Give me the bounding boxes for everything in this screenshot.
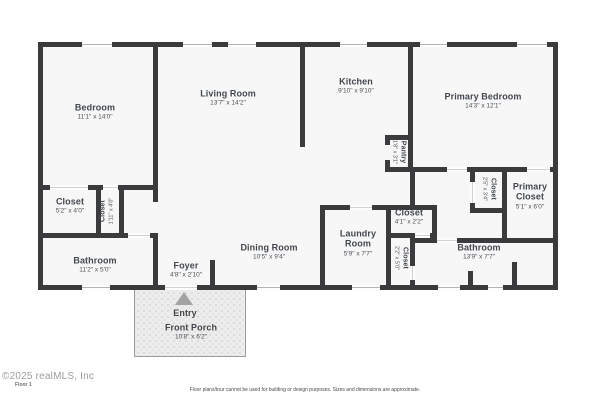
room-label-kitchen: Kitchen 9'10" x 9'10" [338, 77, 374, 96]
window [438, 285, 460, 290]
room-label-pantry: Pantry 1'8" x 3'1" [391, 140, 406, 164]
door-opening [103, 185, 118, 190]
entry-arrow-icon [175, 292, 193, 305]
floorplan-canvas: Bedroom 11'1" x 14'0" Living Room 13'7" … [0, 0, 600, 400]
wall [410, 238, 415, 266]
wall [430, 233, 437, 238]
door-opening [410, 266, 415, 280]
door-opening [470, 182, 475, 203]
wall [212, 42, 228, 47]
window [183, 42, 212, 47]
room-label-bathroom-right: Bathroom 13'9" x 7'7" [457, 243, 500, 262]
room-name: Bathroom [73, 256, 116, 266]
wall [385, 140, 390, 145]
room-name: Closet [395, 208, 423, 218]
room-name: Closet [99, 198, 107, 225]
door-opening [50, 185, 88, 190]
window [340, 42, 367, 47]
wall [38, 42, 43, 290]
room-name: Bathroom [457, 243, 500, 253]
wall [153, 233, 158, 285]
room-dims: 10'5" x 9'4" [240, 254, 297, 261]
wall [385, 167, 413, 172]
room-dims: 5'2" x 4'0" [56, 208, 84, 215]
room-label-closet-1: Closet 5'2" x 4'0" [56, 197, 84, 216]
wall [43, 185, 50, 190]
wall [503, 285, 558, 290]
wall [512, 262, 517, 285]
wall [467, 167, 527, 172]
room-name: Front Porch [165, 323, 217, 333]
room-name: Bedroom [75, 103, 115, 113]
window [420, 42, 447, 47]
disclaimer-text: Floor plans/tour cannot be used for buil… [190, 387, 420, 393]
room-label-primary-closet: Primary Closet 5'1" x 6'0" [507, 181, 553, 210]
wall [38, 285, 82, 290]
window [82, 285, 110, 290]
room-name: Primary Bedroom [444, 92, 521, 102]
room-label-dining-room: Dining Room 10'5" x 9'4" [240, 243, 297, 262]
wall [460, 285, 488, 290]
wall [386, 205, 391, 285]
room-name: Primary Closet [507, 181, 553, 202]
room-dims: 2'5" x 3'4" [481, 177, 487, 201]
wall [468, 271, 473, 285]
door-opening [128, 233, 150, 238]
wall [413, 167, 447, 172]
wall [153, 47, 158, 202]
room-label-closet-5: Closet 2'5" x 3'4" [481, 177, 496, 201]
room-label-front-porch: Front Porch 10'8" x 6'2" [165, 323, 217, 342]
room-label-living-room: Living Room 13'7" x 14'2" [200, 89, 256, 108]
room-dims: 14'3" x 12'1" [444, 103, 521, 110]
room-label-bedroom: Bedroom 11'1" x 14'0" [75, 103, 115, 122]
wall [380, 285, 438, 290]
room-dims: 1'11" x 4'0" [108, 198, 114, 225]
door-opening [350, 205, 372, 210]
room-dims: 10'8" x 6'2" [165, 334, 217, 341]
wall [320, 205, 325, 285]
door-opening [437, 238, 457, 243]
wall [385, 160, 390, 167]
wall [300, 47, 305, 147]
door-opening [447, 167, 467, 172]
wall [470, 172, 475, 182]
room-dims: 4'1" x 2'2" [395, 219, 423, 226]
room-name: Pantry [399, 140, 407, 164]
wall [408, 47, 413, 172]
floor-number-label: Floor 1 [15, 382, 32, 388]
window [517, 42, 547, 47]
room-name: Foyer [170, 261, 202, 271]
room-dims: 5'9" x 7'7" [332, 250, 384, 257]
room-dims: 9'10" x 9'10" [338, 88, 374, 95]
room-label-closet-4: Closet 2'2" x 5'0" [393, 246, 408, 270]
room-label-closet-2: Closet 1'11" x 4'0" [99, 198, 114, 225]
room-dims: 2'2" x 5'0" [393, 246, 399, 270]
window [257, 285, 280, 290]
wall [150, 233, 153, 238]
wall [410, 172, 415, 208]
wall [38, 42, 82, 47]
wall [43, 233, 128, 238]
room-dims: 4'8" x 2'10" [170, 272, 202, 279]
room-name: Living Room [200, 89, 256, 99]
room-dims: 13'9" x 7'7" [457, 254, 500, 261]
room-name: Closet [56, 197, 84, 207]
wall [280, 285, 352, 290]
wall [413, 238, 437, 243]
watermark-text: ©2025 realMLS, Inc [2, 371, 94, 382]
window [228, 42, 256, 47]
room-dims: 1'8" x 3'1" [391, 140, 397, 164]
room-label-primary-bedroom: Primary Bedroom 14'3" x 12'1" [444, 92, 521, 111]
wall [410, 280, 415, 285]
window [352, 285, 380, 290]
wall [447, 42, 517, 47]
door-opening [415, 233, 430, 238]
room-name: Closet [489, 177, 497, 201]
wall [119, 190, 124, 233]
window [82, 42, 112, 47]
room-label-entry: Entry [173, 308, 197, 318]
wall [550, 167, 553, 172]
room-name: Laundry Room [332, 228, 384, 249]
room-name: Closet [401, 246, 409, 270]
room-label-foyer: Foyer 4'8" x 2'10" [170, 261, 202, 280]
room-label-bathroom-left: Bathroom 11'2" x 5'0" [73, 256, 116, 275]
room-dims: 11'1" x 14'0" [75, 114, 115, 121]
room-label-laundry-room: Laundry Room 5'9" x 7'7" [332, 228, 384, 257]
room-dims: 11'2" x 5'0" [73, 267, 116, 274]
wall [112, 42, 183, 47]
wall [256, 42, 340, 47]
room-dims: 13'7" x 14'2" [200, 100, 256, 107]
wall [553, 42, 558, 290]
window [488, 285, 503, 290]
wall [210, 260, 215, 285]
room-name: Dining Room [240, 243, 297, 253]
room-dims: 5'1" x 6'0" [507, 203, 553, 210]
room-label-closet-3: Closet 4'1" x 2'2" [395, 208, 423, 227]
room-name: Entry [173, 308, 197, 318]
door-opening [527, 167, 550, 172]
room-name: Kitchen [338, 77, 374, 87]
